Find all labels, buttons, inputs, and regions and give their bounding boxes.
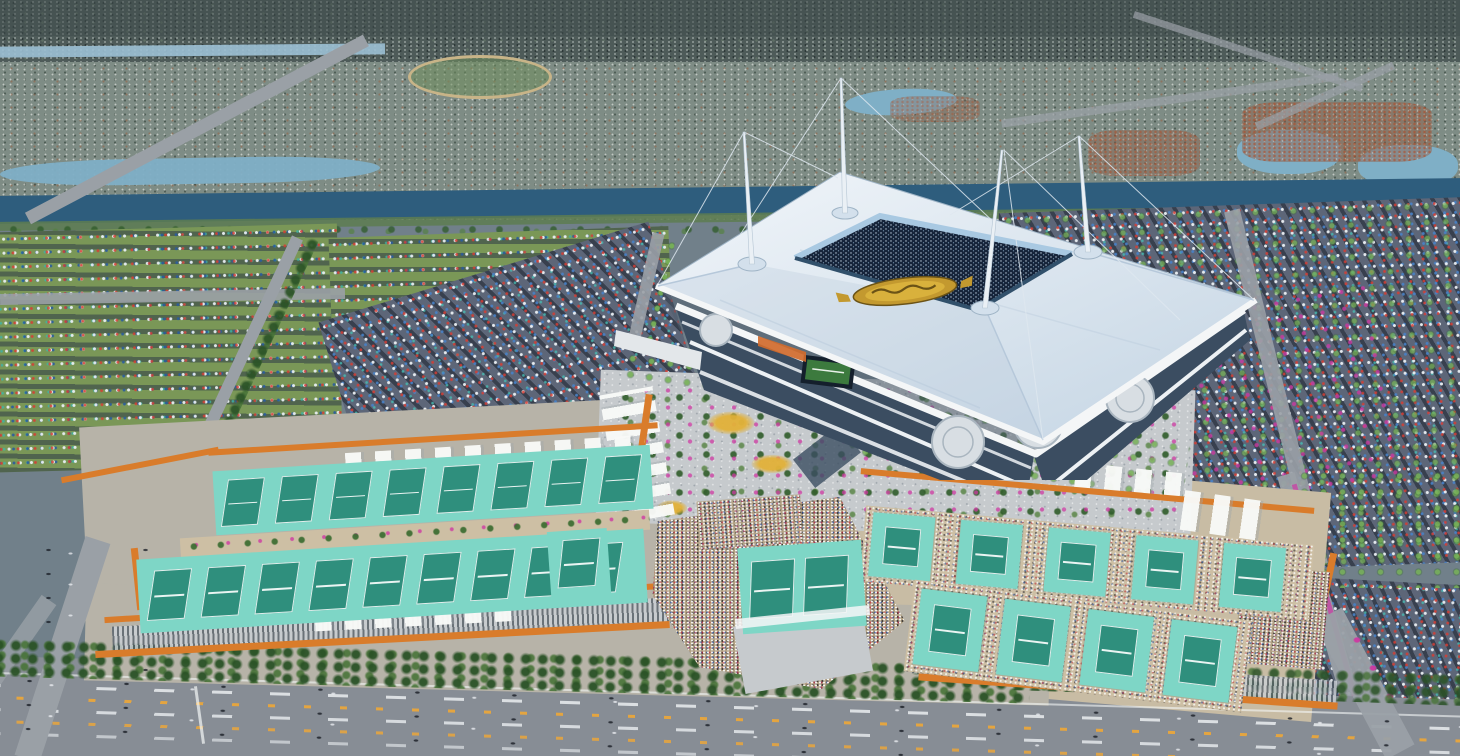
court-net-line	[551, 481, 581, 484]
court-net-line	[154, 594, 184, 597]
court-net-line	[1063, 561, 1092, 565]
court-apron	[1219, 543, 1286, 612]
court-apron	[1131, 535, 1198, 604]
tennis-court	[1057, 542, 1096, 583]
tennis-court	[882, 526, 921, 567]
tennis-court	[362, 555, 407, 608]
city-top-shade	[0, 0, 1460, 36]
tennis-court	[221, 477, 265, 527]
court-net-line	[1185, 659, 1215, 664]
court-net-line	[887, 546, 916, 550]
tennis-court	[329, 471, 373, 521]
court-apron	[1079, 609, 1154, 692]
court-net-line	[1150, 569, 1179, 573]
court-net-line	[390, 491, 420, 494]
court-net-line	[477, 574, 507, 577]
tennis-court	[749, 558, 795, 619]
aerial-scene	[0, 0, 1460, 756]
tennis-court	[201, 565, 246, 618]
court-net-line	[1102, 649, 1132, 654]
court-net-line	[370, 581, 400, 584]
court-apron	[913, 589, 988, 672]
court-net-line	[444, 488, 474, 491]
tennis-court	[544, 457, 588, 507]
court-apron	[1163, 619, 1238, 702]
tennis-court	[928, 604, 972, 656]
court-apron	[996, 599, 1071, 682]
tennis-court	[970, 534, 1009, 575]
tennis-court	[1095, 625, 1139, 677]
tennis-court	[416, 552, 461, 605]
court-net-line	[975, 553, 1004, 557]
court-near-grandstand	[547, 528, 611, 598]
court-net-line	[228, 501, 258, 504]
court-net-line	[935, 628, 965, 633]
court-apron	[868, 512, 935, 581]
tennis-court	[275, 474, 319, 524]
tennis-court	[1233, 557, 1272, 598]
tennis-court	[308, 558, 353, 611]
court-net-line	[564, 562, 594, 566]
court-net-line	[424, 577, 454, 580]
court-apron	[1043, 528, 1110, 597]
tennis-court	[1145, 549, 1184, 590]
court-net-line	[336, 495, 366, 498]
court-net-line	[262, 587, 292, 590]
tennis-court	[436, 464, 480, 514]
magenta-median-br-1	[1352, 636, 1362, 644]
hard-rock-stadium	[600, 60, 1300, 480]
tennis-court	[1178, 635, 1222, 687]
court-net-line	[316, 584, 346, 587]
court-apron	[956, 520, 1023, 589]
court-net-line	[754, 588, 789, 592]
tennis-court	[383, 467, 427, 517]
tennis-court	[1012, 614, 1056, 666]
racetrack	[408, 55, 552, 99]
tennis-court	[470, 548, 515, 601]
tennis-court	[557, 537, 600, 588]
court-net-line	[1018, 639, 1048, 644]
tennis-court	[147, 568, 192, 621]
tennis-court	[254, 562, 299, 615]
tennis-court	[490, 461, 534, 511]
court-net-line	[1238, 576, 1267, 580]
court-net-line	[208, 590, 238, 593]
court-net-line	[497, 485, 527, 488]
grandstand-upper-tier	[696, 494, 803, 549]
court-net-line	[808, 584, 843, 588]
court-net-line	[282, 498, 312, 501]
